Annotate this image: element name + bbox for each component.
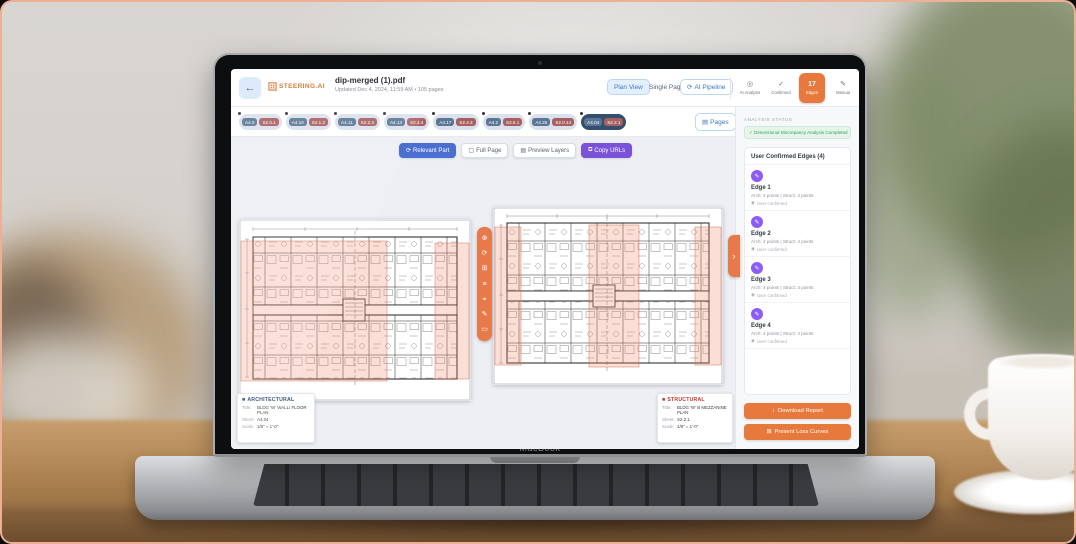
- struct-sheet-tag[interactable]: S2.2.3: [358, 118, 377, 126]
- architectural-info-card: ■ARCHITECTURAL Title:BLDG 'W' WALL/ FLOO…: [237, 393, 315, 443]
- mode-manual[interactable]: ✎ Manual: [830, 73, 856, 103]
- edge-name: Edge 3: [751, 277, 844, 283]
- edge-tools-toolbar: ⊕ ⟳ ⊞ ≡ ⌖ ✎ ▭: [477, 227, 492, 341]
- person-icon: ◉: [751, 246, 755, 252]
- struct-sheet-tag[interactable]: S2.0.1: [259, 118, 278, 126]
- sheet-label: Sheet:: [662, 417, 674, 422]
- pair-row: A4.0S2.0.1 A4.10S2.1.2 A4.11S2.2.3 A4.13…: [239, 114, 626, 130]
- edge-detail: Arch: 4 points | Struct: 4 points: [751, 331, 844, 336]
- analysis-icon: ◎: [747, 81, 753, 89]
- grid-icon[interactable]: ⊞: [482, 265, 488, 272]
- full-page-button[interactable]: ▢Full Page: [461, 143, 508, 158]
- person-icon: ◉: [751, 338, 755, 344]
- sheet-pair[interactable]: A4.25S2.0.14: [529, 114, 577, 130]
- app-header: ← STEERING.AI dip-merged (1).pdf Updated…: [231, 69, 859, 107]
- person-icon: ◉: [751, 200, 755, 206]
- arch-sheet-tag[interactable]: A4.11: [338, 118, 356, 126]
- edge-status: User confirmed: [757, 339, 787, 344]
- chart-icon: ⊞: [767, 429, 772, 435]
- sparkle-logo: ✦: [1010, 480, 1040, 510]
- confirmed-edges-panel: User Confirmed Edges (4) ✎ Edge 1 Arch: …: [744, 147, 851, 395]
- edge-card[interactable]: ✎ Edge 1 Arch: 4 points | Struct: 4 poin…: [745, 165, 850, 211]
- edge-detail: Arch: 4 points | Struct: 4 points: [751, 285, 844, 290]
- pencil-icon[interactable]: ✎: [482, 311, 488, 318]
- keyboard: [253, 464, 819, 506]
- sheet-label: Sheet:: [242, 417, 254, 422]
- edge-pencil-icon: ✎: [751, 262, 763, 274]
- structural-info-card: ■STRUCTURAL Title:BLDG 'W' B MEZZANINE P…: [657, 393, 733, 443]
- layers-icon: ▤: [520, 147, 526, 154]
- bullet-icon: ■: [242, 397, 245, 403]
- mode-group: ◎ AI Analysis ✓ Confirmed 17 Edges ✎ Man…: [737, 73, 856, 103]
- edge-name: Edge 2: [751, 231, 844, 237]
- webcam-icon: [538, 61, 542, 65]
- arch-sheet-tag[interactable]: A4.10: [289, 118, 307, 126]
- preview-layers-button[interactable]: ▤Preview Layers: [513, 143, 576, 158]
- pair-badge: [579, 111, 584, 116]
- struct-sheet-tag[interactable]: S2.4.3: [456, 118, 475, 126]
- pair-badge: [333, 111, 338, 116]
- pages-button[interactable]: ▤ Pages: [695, 113, 736, 131]
- struct-sheet-tag[interactable]: S2.3.4: [407, 118, 426, 126]
- building-icon: [268, 82, 277, 91]
- mode-label: Manual: [836, 90, 850, 95]
- title-label: Title:: [242, 405, 254, 415]
- sheet-pair[interactable]: A4.10S2.1.2: [286, 114, 331, 130]
- coffee-cup: [988, 358, 1076, 480]
- refresh-icon: ⟳: [406, 147, 411, 154]
- target-icon[interactable]: ⌖: [483, 296, 487, 303]
- mode-ai-analysis[interactable]: ◎ AI Analysis: [737, 73, 763, 103]
- title-label: Title:: [662, 405, 674, 415]
- arch-heading: ARCHITECTURAL: [247, 397, 294, 403]
- edge-status: User confirmed: [757, 201, 787, 206]
- laptop-base: [135, 456, 935, 520]
- app-screen: ← STEERING.AI dip-merged (1).pdf Updated…: [231, 69, 859, 449]
- ai-pipeline-button[interactable]: ⟳ AI Pipeline: [680, 79, 733, 95]
- copy-urls-label: Copy URLs: [594, 148, 625, 154]
- struct-sheet-tag[interactable]: S2.1.2: [309, 118, 328, 126]
- file-info: dip-merged (1).pdf Updated Dec 4, 2024, …: [335, 76, 444, 93]
- pencil-icon: ✎: [840, 81, 846, 89]
- bullet-icon: ■: [662, 397, 665, 403]
- frame-icon: ▢: [468, 147, 474, 154]
- edge-pencil-icon: ✎: [751, 170, 763, 182]
- sheet-pair[interactable]: A4.17S2.4.3: [433, 114, 478, 130]
- pair-badge: [237, 111, 242, 116]
- sheet-pair[interactable]: A4.0S2.0.1: [239, 114, 282, 130]
- single-page-label: Single Page: [649, 84, 684, 91]
- arch-sheet-tag[interactable]: A4.2: [486, 118, 501, 126]
- brand-name: STEERING.AI: [279, 83, 325, 90]
- arch-sheet-tag[interactable]: A4.25: [532, 118, 550, 126]
- copy-urls-button[interactable]: ⧉Copy URLs: [581, 143, 632, 158]
- brand: STEERING.AI: [268, 82, 325, 91]
- sidebar-collapse-handle[interactable]: ›: [728, 235, 740, 277]
- pair-badge: [284, 111, 289, 116]
- analysis-status-label: ANALYSIS STATUS: [744, 117, 792, 122]
- preview-layers-label: Preview Layers: [528, 148, 569, 154]
- arch-sheet: A4.04: [257, 417, 268, 422]
- edge-name: Edge 1: [751, 185, 844, 191]
- relevant-part-button[interactable]: ⟳Relevant Part: [399, 143, 456, 158]
- edge-card[interactable]: ✎ Edge 4 Arch: 4 points | Struct: 4 poin…: [745, 303, 850, 349]
- present-loss-curves-button[interactable]: ⊞ Present Loss Curves: [744, 424, 851, 440]
- struct-sheet-tag[interactable]: S2.5.1: [503, 118, 522, 126]
- scale-label: Scale:: [242, 424, 254, 429]
- layers-list-icon[interactable]: ≡: [482, 281, 486, 288]
- sheet-pair-selected[interactable]: A4.04S2.2.1: [581, 114, 626, 130]
- sheet-pair[interactable]: A4.2S2.5.1: [483, 114, 526, 130]
- edges-panel-title: User Confirmed Edges (4): [745, 148, 850, 165]
- mode-confirmed[interactable]: ✓ Confirmed: [768, 73, 794, 103]
- edge-status: User confirmed: [757, 293, 787, 298]
- arch-title: BLDG 'W' WALL/ FLOOR PLAN: [257, 405, 310, 415]
- mode-label: Edges: [806, 90, 818, 95]
- arch-sheet-tag[interactable]: A4.04: [584, 118, 602, 126]
- add-point-icon[interactable]: ⊕: [482, 235, 488, 242]
- edge-detail: Arch: 4 points | Struct: 4 points: [751, 239, 844, 244]
- mode-label: AI Analysis: [740, 90, 760, 95]
- sheet-pair[interactable]: A4.13S2.3.4: [384, 114, 429, 130]
- sheet-pair[interactable]: A4.11S2.2.3: [335, 114, 380, 130]
- edge-card[interactable]: ✎ Edge 3 Arch: 4 points | Struct: 4 poin…: [745, 257, 850, 303]
- mode-edges[interactable]: 17 Edges: [799, 73, 825, 103]
- ai-pipeline-label: AI Pipeline: [694, 84, 725, 91]
- edges-count-badge: 17: [808, 81, 816, 89]
- edge-name: Edge 4: [751, 323, 844, 329]
- architectural-plan-sheet[interactable]: [239, 219, 471, 401]
- file-name: dip-merged (1).pdf: [335, 76, 444, 85]
- refresh-icon[interactable]: ⟳: [482, 250, 488, 257]
- struct-sheet: S2.2.1: [677, 417, 690, 422]
- relevant-part-label: Relevant Part: [413, 148, 449, 154]
- struct-heading: STRUCTURAL: [667, 397, 704, 403]
- pair-badge: [527, 111, 532, 116]
- download-report-button[interactable]: ↓ Download Report: [744, 403, 851, 419]
- edge-detail: Arch: 4 points | Struct: 4 points: [751, 193, 844, 198]
- edge-pencil-icon: ✎: [751, 308, 763, 320]
- sheet-pair-strip: A4.0S2.0.1 A4.10S2.1.2 A4.11S2.2.3 A4.13…: [231, 107, 735, 137]
- person-icon: ◉: [751, 292, 755, 298]
- full-page-label: Full Page: [476, 148, 501, 154]
- edge-pencil-icon: ✎: [751, 216, 763, 228]
- arch-sheet-tag[interactable]: A4.13: [387, 118, 405, 126]
- pair-badge: [431, 111, 436, 116]
- file-meta: Updated Dec 4, 2024, 11:59 AM • 105 page…: [335, 87, 444, 93]
- lid-notch: [490, 456, 580, 463]
- check-circle-icon: ✓: [778, 81, 784, 89]
- pages-label: Pages: [710, 119, 728, 126]
- header-divider: [730, 77, 731, 99]
- arch-sheet-tag[interactable]: A4.17: [436, 118, 454, 126]
- present-loss-label: Present Loss Curves: [775, 429, 829, 435]
- download-report-label: Download Report: [778, 408, 823, 414]
- struct-title: BLDG 'W' B MEZZANINE PLAN: [677, 405, 728, 415]
- right-sidebar: ANALYSIS STATUS ✓ Dimensional Discrepanc…: [735, 107, 859, 449]
- back-button[interactable]: ←: [239, 77, 261, 99]
- arch-scale: 1/8" = 1'-0": [257, 424, 278, 429]
- edge-status: User confirmed: [757, 247, 787, 252]
- page-icon: ▤: [702, 118, 708, 126]
- struct-scale: 1/8" = 1'-0": [677, 424, 698, 429]
- analysis-status-banner: ✓ Dimensional Discrepancy Analysis Compl…: [744, 126, 851, 139]
- download-icon: ↓: [772, 408, 775, 414]
- struct-sheet-tag[interactable]: S2.0.14: [552, 118, 574, 126]
- refresh-icon: ⟳: [687, 83, 692, 91]
- canvas: A4.0S2.0.1 A4.10S2.1.2 A4.11S2.2.3 A4.13…: [231, 107, 735, 449]
- architectural-floor-plan: [239, 219, 471, 401]
- back-icon: ←: [245, 82, 256, 94]
- main-area: A4.0S2.0.1 A4.10S2.1.2 A4.11S2.2.3 A4.13…: [231, 107, 859, 449]
- scale-label: Scale:: [662, 424, 674, 429]
- chevron-right-icon: ›: [733, 251, 736, 261]
- pair-badge: [481, 111, 486, 116]
- structural-plan-sheet[interactable]: [493, 207, 723, 385]
- select-rect-icon[interactable]: ▭: [481, 326, 488, 333]
- mode-label: Confirmed: [771, 90, 790, 95]
- edge-card[interactable]: ✎ Edge 2 Arch: 4 points | Struct: 4 poin…: [745, 211, 850, 257]
- plan-view-label: Plan View: [614, 84, 643, 91]
- struct-sheet-tag[interactable]: S2.2.1: [604, 118, 623, 126]
- structural-floor-plan: [493, 207, 723, 385]
- pair-badge: [382, 111, 387, 116]
- canvas-toolbar: ⟳Relevant Part ▢Full Page ▤Preview Layer…: [399, 143, 632, 158]
- copy-icon: ⧉: [588, 147, 592, 154]
- scene: MacBook ← STEERING.AI dip-merged (1).pdf…: [0, 0, 1076, 544]
- arch-sheet-tag[interactable]: A4.0: [242, 118, 257, 126]
